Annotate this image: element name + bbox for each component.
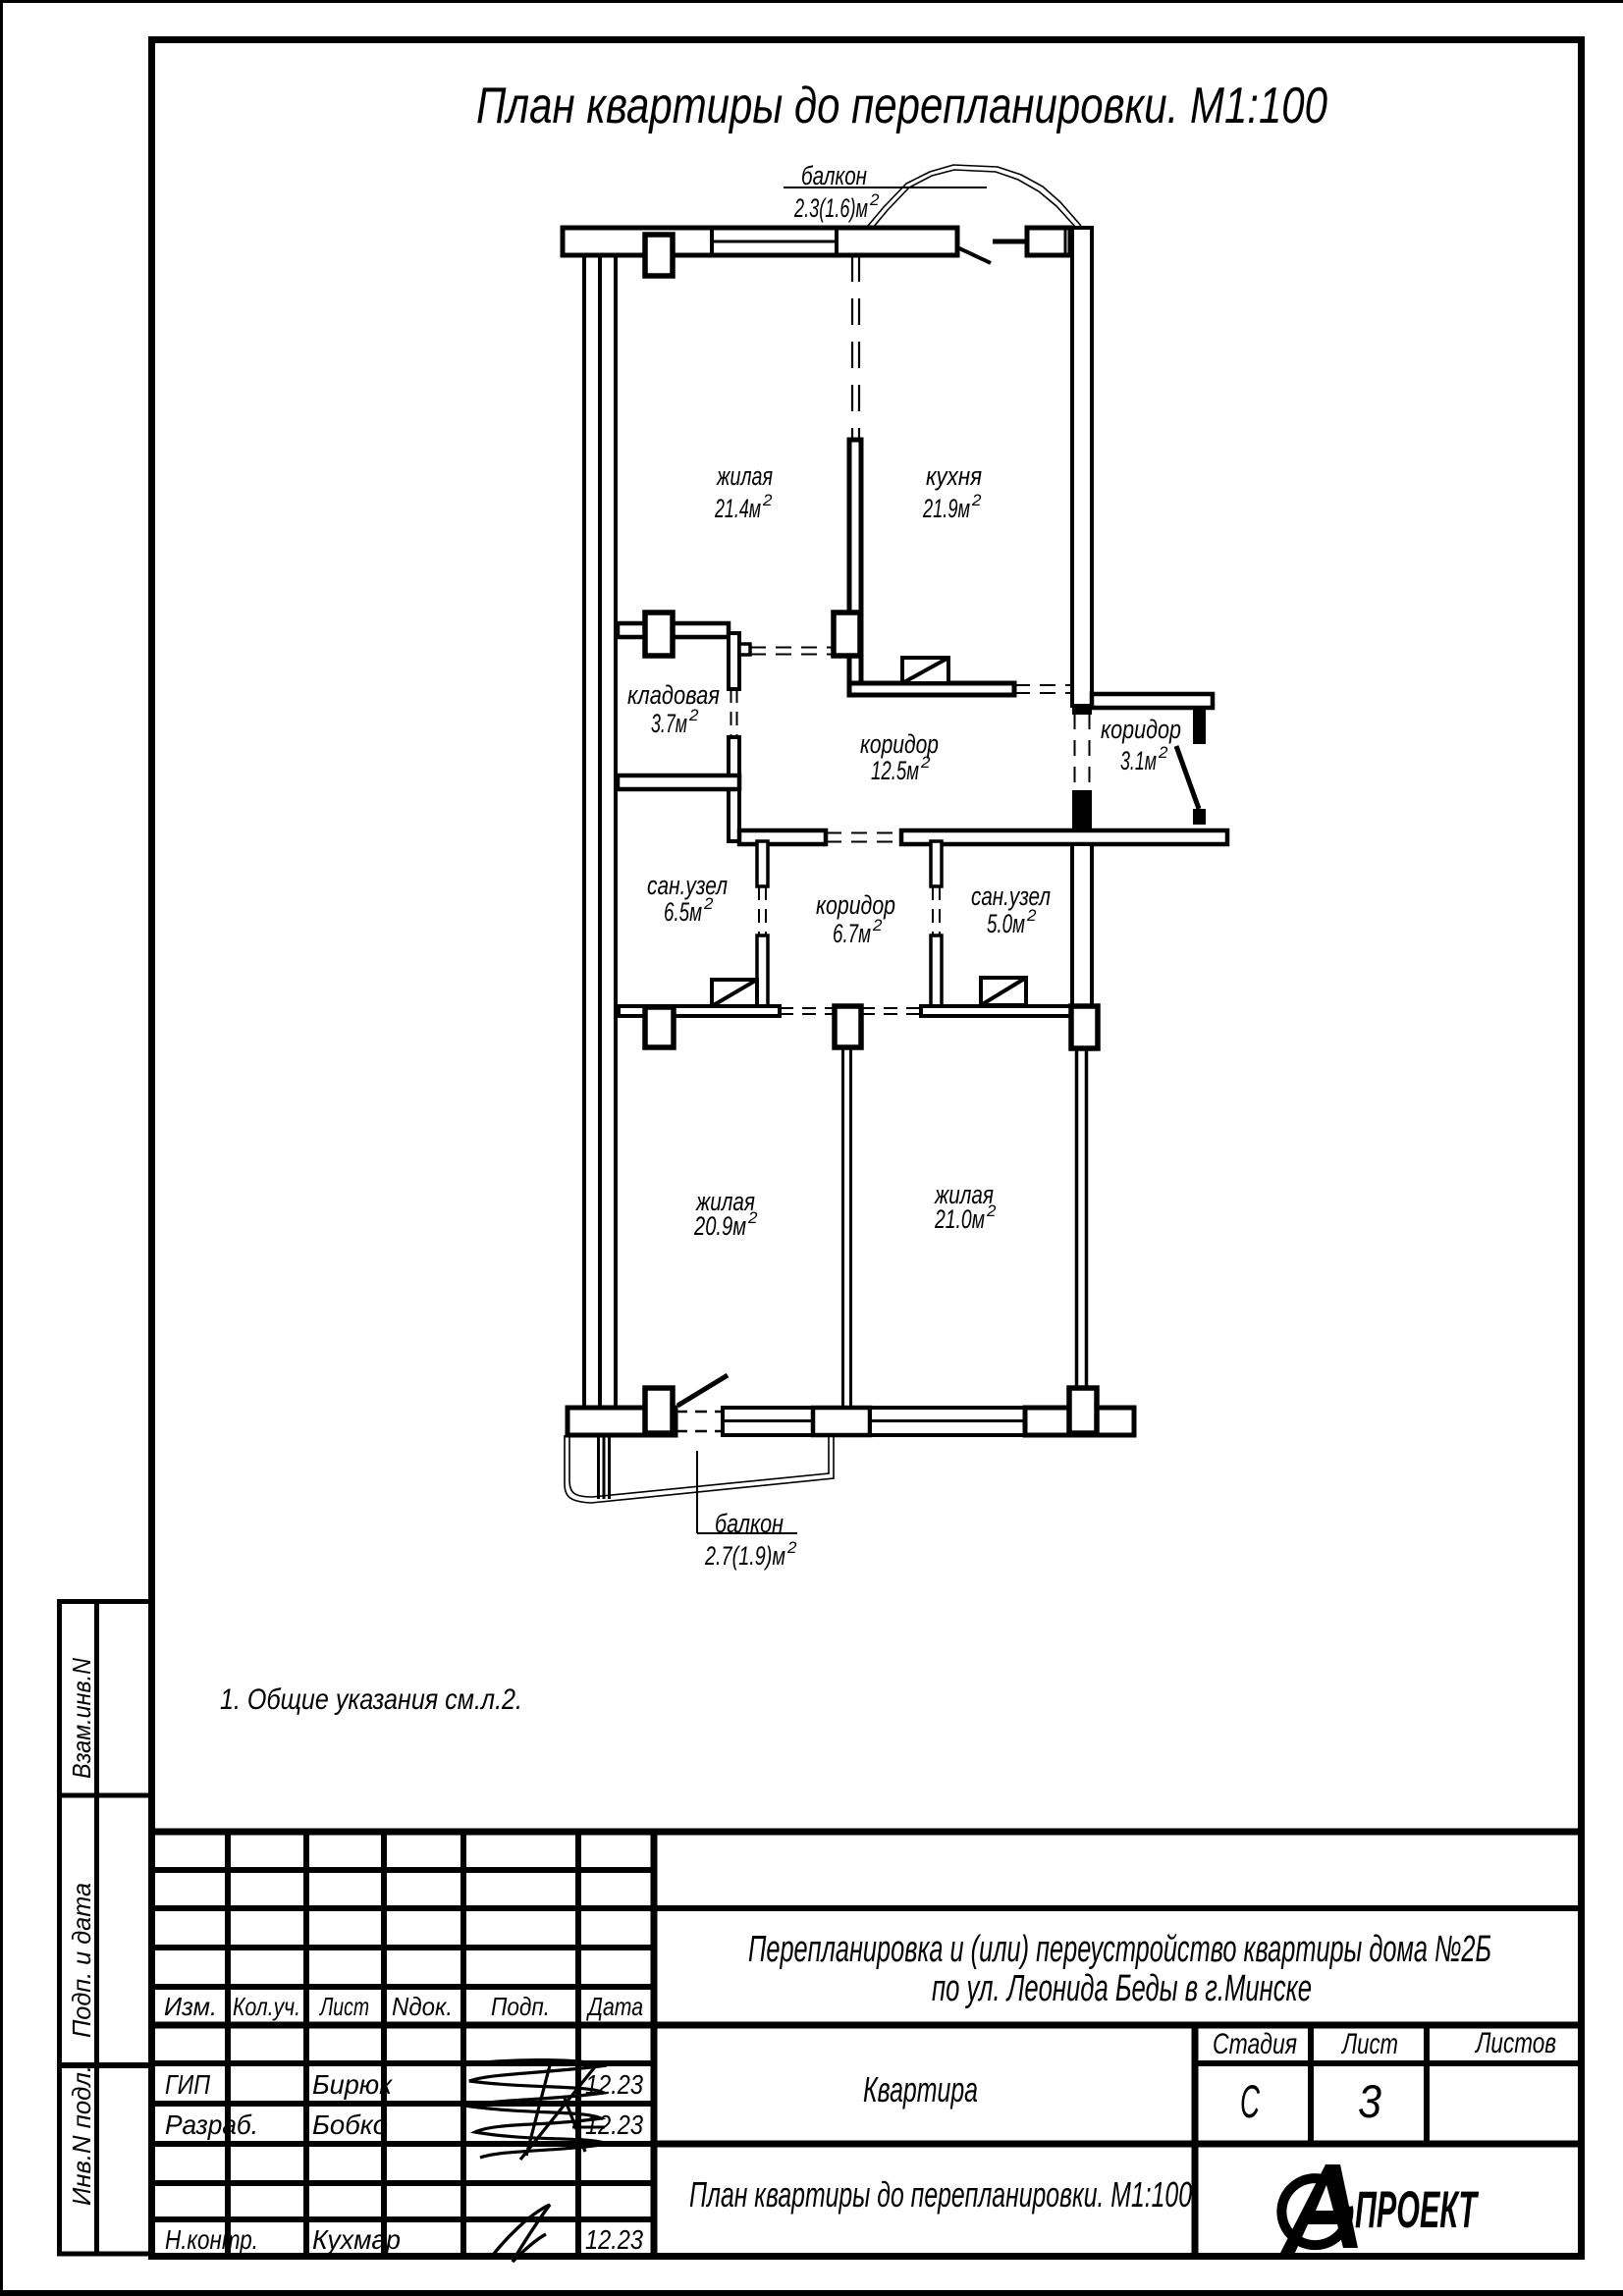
svg-text:2: 2 (703, 894, 714, 913)
svg-text:Кухмар: Кухмар (312, 2224, 401, 2255)
svg-text:Разраб.: Разраб. (165, 2109, 258, 2140)
svg-text:коридор: коридор (816, 890, 895, 920)
svg-text:2: 2 (986, 1201, 997, 1220)
svg-text:Подп. и дата: Подп. и дата (67, 1883, 96, 2038)
svg-text:2.3(1.6)м: 2.3(1.6)м (793, 193, 868, 223)
svg-text:2: 2 (971, 491, 982, 509)
svg-text:жилая: жилая (716, 461, 773, 491)
svg-text:6.5м: 6.5м (664, 897, 702, 927)
svg-text:1. Общие указания см.л.2.: 1. Общие указания см.л.2. (220, 1683, 522, 1716)
svg-text:2: 2 (1026, 906, 1037, 925)
svg-text:кладовая: кладовая (627, 680, 720, 710)
svg-text:3: 3 (1358, 2075, 1381, 2127)
svg-text:3.7м: 3.7м (651, 709, 687, 738)
svg-text:План квартиры до перепланиров: План квартиры до перепланировки. М1:100 (476, 78, 1327, 134)
svg-text:21.0м: 21.0м (934, 1204, 985, 1234)
svg-text:2: 2 (762, 491, 773, 509)
svg-text:Стадия: Стадия (1213, 2028, 1297, 2060)
svg-text:Дата: Дата (586, 1992, 643, 2021)
svg-text:12.23: 12.23 (585, 2109, 643, 2140)
svg-text:ГИП: ГИП (165, 2069, 211, 2100)
svg-text:Перепланировка и (или) переуст: Перепланировка и (или) переустройство кв… (748, 1929, 1491, 1970)
svg-text:Nдок.: Nдок. (392, 1992, 453, 2021)
svg-text:План квартиры до перепланировк: План квартиры до перепланировки. М1:100 (689, 2174, 1192, 2215)
svg-text:сан.узел: сан.узел (647, 871, 728, 900)
svg-text:20.9м: 20.9м (693, 1211, 746, 1241)
svg-text:Листов: Листов (1474, 2027, 1556, 2059)
svg-text:Кол.уч.: Кол.уч. (233, 1992, 300, 2021)
svg-text:кухня: кухня (926, 461, 982, 491)
svg-text:6.7м: 6.7м (833, 919, 871, 948)
svg-text:21.9м: 21.9м (922, 494, 970, 523)
svg-text:12.5м: 12.5м (871, 756, 919, 785)
svg-text:Лист: Лист (1341, 2028, 1398, 2060)
svg-text:сан.узел: сан.узел (971, 881, 1051, 911)
svg-text:2: 2 (747, 1208, 758, 1227)
svg-text:2: 2 (786, 1538, 797, 1557)
svg-text:Бобко: Бобко (312, 2109, 388, 2140)
svg-text:балкон: балкон (801, 161, 867, 190)
svg-text:Лист: Лист (319, 1992, 369, 2021)
svg-text:2.7(1.9)м: 2.7(1.9)м (704, 1541, 785, 1571)
svg-text:Бирюк: Бирюк (312, 2069, 394, 2100)
svg-text:Подп.: Подп. (491, 1992, 550, 2021)
svg-text:21.4м: 21.4м (714, 494, 761, 523)
svg-text:Взам.инв.N: Взам.инв.N (67, 1658, 96, 1779)
svg-text:2: 2 (688, 706, 699, 724)
svg-text:по ул. Леонида Беды в г.Минске: по ул. Леонида Беды в г.Минске (932, 1968, 1312, 2009)
svg-text:коридор: коридор (1101, 715, 1181, 744)
svg-text:2: 2 (920, 753, 931, 772)
svg-text:2: 2 (1158, 743, 1168, 762)
svg-text:5.0м: 5.0м (987, 909, 1025, 938)
svg-text:Н.контр.: Н.контр. (165, 2224, 258, 2255)
svg-text:2: 2 (869, 190, 880, 209)
svg-text:12.23: 12.23 (585, 2224, 643, 2255)
svg-text:ПРОЕКТ: ПРОЕКТ (1355, 2181, 1480, 2239)
svg-text:Изм.: Изм. (164, 1992, 217, 2021)
svg-text:балкон: балкон (715, 1509, 784, 1538)
svg-text:2: 2 (872, 916, 883, 934)
svg-text:Квартира: Квартира (863, 2069, 978, 2109)
svg-text:С: С (1240, 2075, 1261, 2127)
svg-text:Инв.N подл.: Инв.N подл. (67, 2065, 96, 2206)
svg-text:3.1м: 3.1м (1120, 746, 1157, 775)
